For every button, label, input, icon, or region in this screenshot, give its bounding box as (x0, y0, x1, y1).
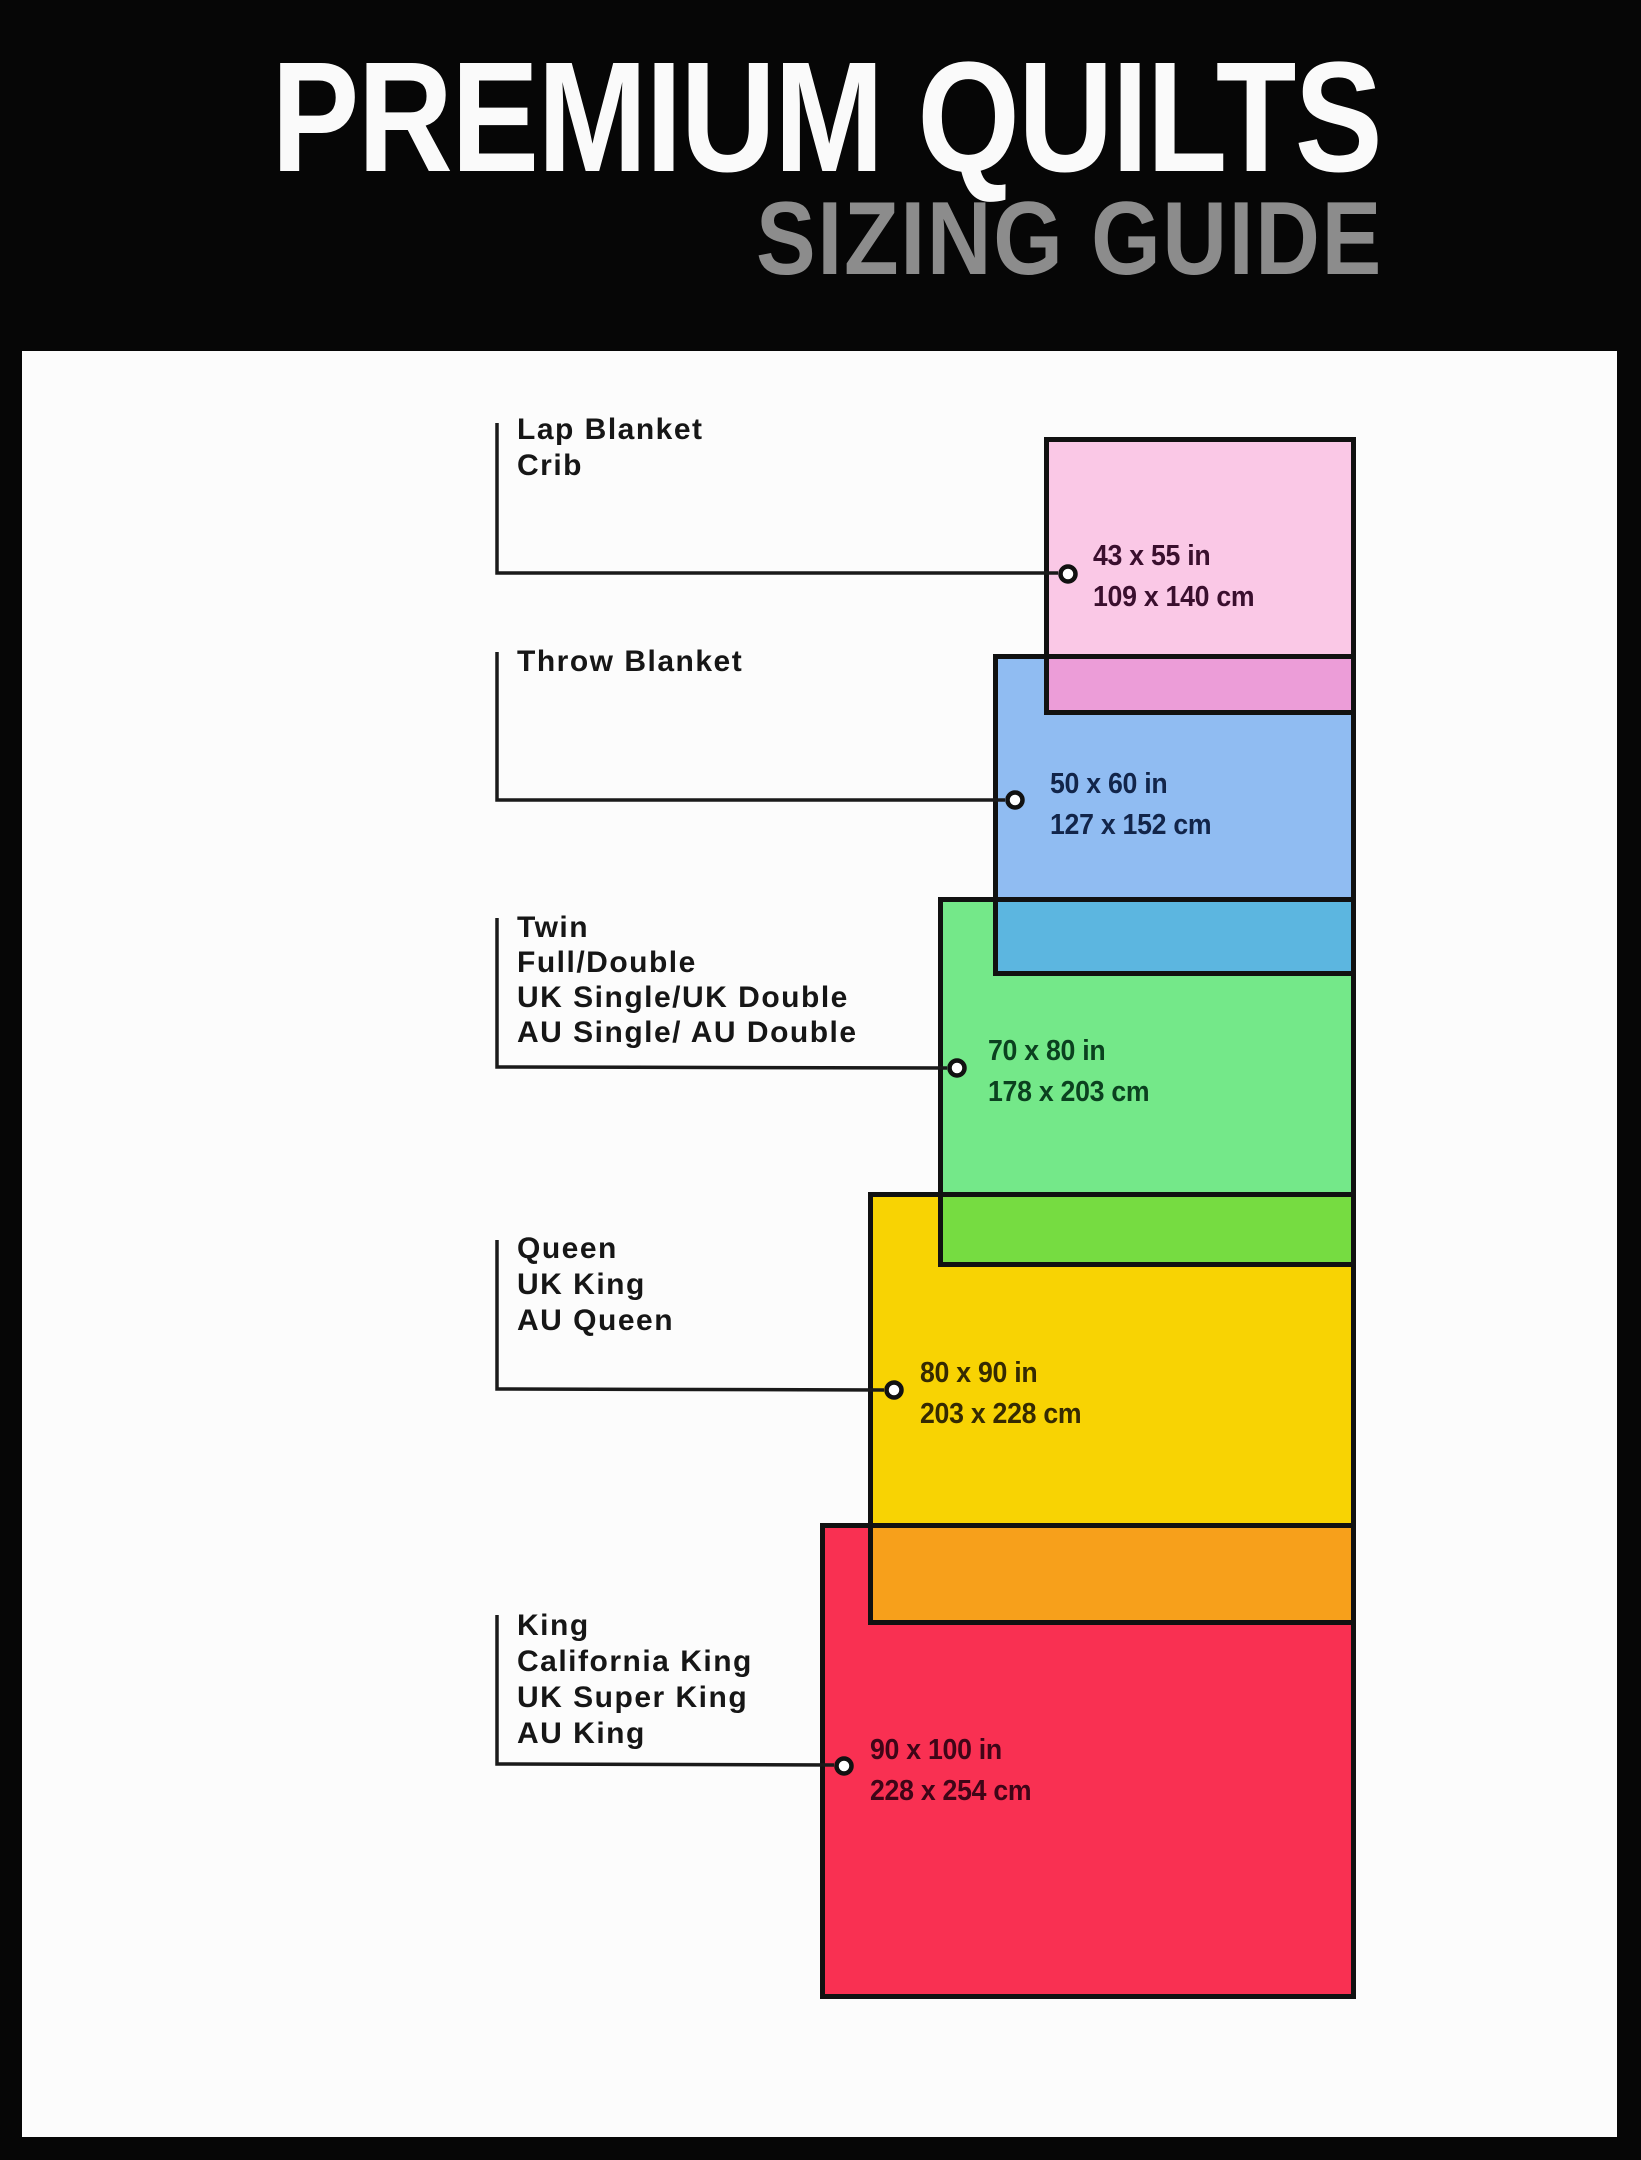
label-queen: Queen UK King AU Queen (517, 1231, 674, 1339)
dims-lap-blanket: 43 x 55 in 109 x 140 cm (1093, 536, 1254, 618)
label-line: UK King (517, 1267, 674, 1303)
dims-inches: 70 x 80 in (988, 1031, 1149, 1072)
label-twin: Twin Full/Double UK Single/UK Double AU … (517, 910, 858, 1050)
label-line: AU Single/ AU Double (517, 1015, 858, 1050)
connector-lap-dot (1061, 567, 1076, 582)
label-line: UK Super King (517, 1680, 753, 1716)
label-line: Crib (517, 448, 704, 484)
label-throw-blanket: Throw Blanket (517, 644, 743, 680)
quilt-sizing-infographic: PREMIUM QUILTS SIZING GUIDE Lap Blanket … (0, 0, 1641, 2160)
label-line: Twin (517, 910, 858, 945)
dims-cm: 127 x 152 cm (1050, 805, 1211, 846)
dims-inches: 43 x 55 in (1093, 536, 1254, 577)
connector-throw-dot (1008, 793, 1023, 808)
label-line: UK Single/UK Double (517, 980, 858, 1015)
dims-cm: 228 x 254 cm (870, 1771, 1031, 1812)
connector-king-dot (837, 1759, 852, 1774)
label-line: Throw Blanket (517, 644, 743, 680)
dims-king: 90 x 100 in 228 x 254 cm (870, 1730, 1031, 1812)
connector-queen-dot (887, 1383, 902, 1398)
label-line: Queen (517, 1231, 674, 1267)
dims-cm: 203 x 228 cm (920, 1394, 1081, 1435)
dims-inches: 50 x 60 in (1050, 764, 1211, 805)
label-king: King California King UK Super King AU Ki… (517, 1608, 753, 1752)
connector-lines (0, 0, 1641, 2160)
label-lap-blanket: Lap Blanket Crib (517, 412, 704, 484)
label-line: AU Queen (517, 1303, 674, 1339)
label-line: Full/Double (517, 945, 858, 980)
dims-cm: 109 x 140 cm (1093, 577, 1254, 618)
label-line: Lap Blanket (517, 412, 704, 448)
dims-cm: 178 x 203 cm (988, 1072, 1149, 1113)
dims-twin: 70 x 80 in 178 x 203 cm (988, 1031, 1149, 1113)
dims-queen: 80 x 90 in 203 x 228 cm (920, 1353, 1081, 1435)
connector-twin-dot (950, 1061, 965, 1076)
dims-inches: 80 x 90 in (920, 1353, 1081, 1394)
dims-throw-blanket: 50 x 60 in 127 x 152 cm (1050, 764, 1211, 846)
label-line: AU King (517, 1716, 753, 1752)
label-line: California King (517, 1644, 753, 1680)
label-line: King (517, 1608, 753, 1644)
dims-inches: 90 x 100 in (870, 1730, 1031, 1771)
